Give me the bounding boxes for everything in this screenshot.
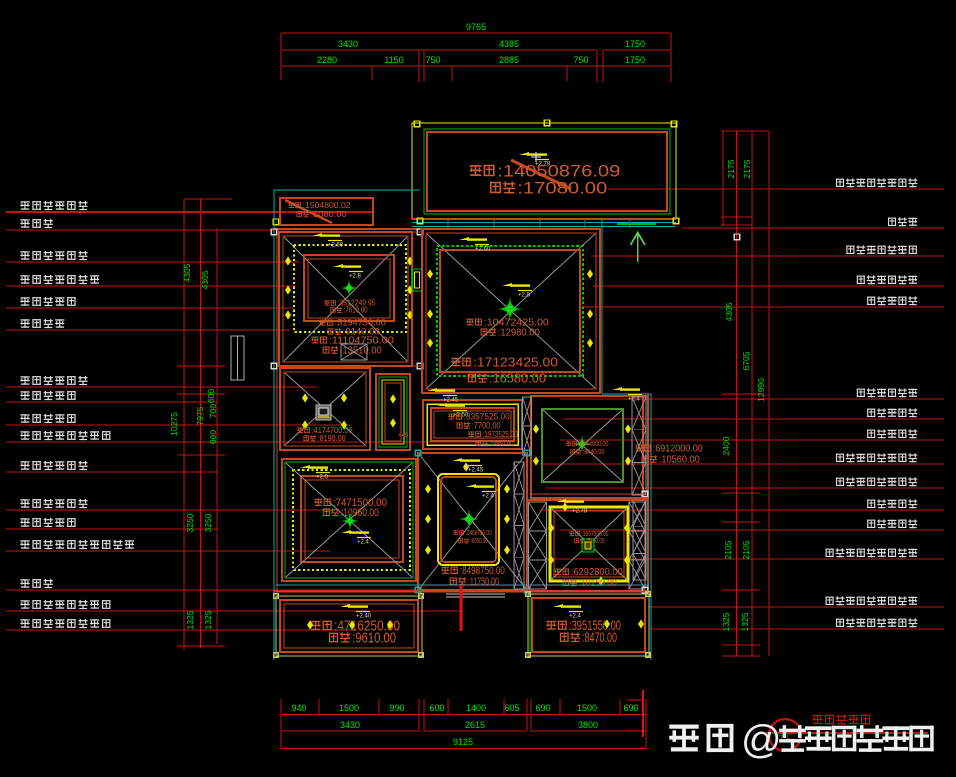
svg-text::12980.00: :12980.00	[498, 328, 540, 339]
svg-text:2400: 2400	[721, 436, 731, 455]
svg-text::10150.00: :10150.00	[579, 578, 617, 589]
svg-text:4385: 4385	[499, 39, 519, 49]
svg-text:4305: 4305	[182, 263, 192, 282]
svg-text::5160.00: :5160.00	[587, 536, 605, 545]
svg-text:1150: 1150	[384, 55, 403, 65]
svg-text:2885: 2885	[499, 55, 519, 65]
svg-text:+2.45: +2.45	[468, 468, 484, 474]
svg-text:3800: 3800	[578, 720, 598, 730]
svg-text:600: 600	[429, 703, 444, 713]
svg-text:990: 990	[389, 703, 404, 713]
svg-text::9610.00: :9610.00	[352, 631, 396, 647]
svg-text::10560.00: :10560.00	[659, 455, 700, 466]
svg-text:+45: +45	[398, 433, 409, 439]
svg-text:690: 690	[623, 703, 638, 713]
svg-text:9125: 9125	[453, 737, 473, 747]
svg-text:+2.4: +2.4	[357, 540, 370, 546]
svg-text:2175: 2175	[742, 159, 752, 178]
svg-text:2105: 2105	[741, 540, 751, 559]
svg-text:600: 600	[206, 389, 216, 403]
svg-text:1325: 1325	[740, 612, 750, 631]
svg-text:+2.8: +2.8	[518, 293, 531, 299]
svg-text:+2.0: +2.0	[316, 475, 329, 481]
svg-text:3250: 3250	[185, 513, 195, 532]
svg-text::16580.00: :16580.00	[489, 371, 546, 386]
svg-text::7610.00: :7610.00	[344, 306, 369, 315]
svg-text::8470.00: :8470.00	[582, 630, 617, 645]
svg-text:1500: 1500	[339, 703, 359, 713]
svg-text:+2.60: +2.60	[328, 243, 344, 249]
svg-text:1400: 1400	[466, 703, 486, 713]
svg-text::5080.00: :5080.00	[311, 209, 347, 219]
svg-text::6550.00: :6550.00	[471, 536, 488, 545]
svg-text:10275: 10275	[169, 412, 179, 436]
svg-text:+2.78: +2.78	[572, 509, 588, 515]
svg-text:700: 700	[208, 404, 218, 418]
svg-text::8190.00: :8190.00	[318, 433, 346, 443]
svg-text:@: @	[741, 718, 782, 762]
svg-text:2280: 2280	[317, 55, 337, 65]
svg-text::17080.00: :17080.00	[517, 178, 607, 197]
svg-text::17123425.00: :17123425.00	[473, 355, 558, 370]
svg-text:1500: 1500	[577, 703, 597, 713]
svg-text:940: 940	[291, 703, 306, 713]
svg-text:1325: 1325	[185, 610, 195, 629]
svg-text::6292800.00: :6292800.00	[571, 567, 624, 578]
svg-text::5660.00: :5660.00	[490, 438, 514, 448]
svg-text:605: 605	[504, 703, 519, 713]
svg-text:7975: 7975	[195, 406, 205, 425]
svg-text:3430: 3430	[338, 39, 358, 49]
svg-text::11750.00: :11750.00	[468, 576, 499, 588]
svg-text:750: 750	[425, 55, 440, 65]
svg-text:1750: 1750	[625, 55, 645, 65]
svg-text:9765: 9765	[466, 22, 486, 32]
svg-text:750: 750	[573, 55, 588, 65]
svg-text:1325: 1325	[721, 612, 731, 631]
svg-text:1325: 1325	[203, 610, 213, 629]
svg-text:6705: 6705	[741, 351, 751, 370]
svg-text:+2.4: +2.4	[482, 494, 495, 500]
svg-text:1750: 1750	[625, 39, 645, 49]
svg-text:4305: 4305	[724, 302, 734, 321]
svg-text:+2.8: +2.8	[349, 274, 362, 280]
svg-text:+2.45: +2.45	[443, 398, 459, 404]
svg-text:2175: 2175	[726, 159, 736, 178]
svg-text:600: 600	[208, 430, 218, 444]
svg-text:2105: 2105	[723, 540, 733, 559]
svg-text::10960.00: :10960.00	[341, 507, 379, 519]
svg-text::6912000.00: :6912000.00	[653, 444, 703, 455]
svg-text:12990: 12990	[756, 378, 766, 402]
svg-text:3430: 3430	[340, 720, 360, 730]
svg-text:+2.60: +2.60	[475, 247, 491, 253]
svg-text::9440.00: :9440.00	[583, 447, 605, 456]
svg-text:2615: 2615	[465, 720, 485, 730]
svg-text:690: 690	[535, 703, 550, 713]
svg-text:3250: 3250	[203, 513, 213, 532]
svg-text:4305: 4305	[200, 270, 210, 289]
